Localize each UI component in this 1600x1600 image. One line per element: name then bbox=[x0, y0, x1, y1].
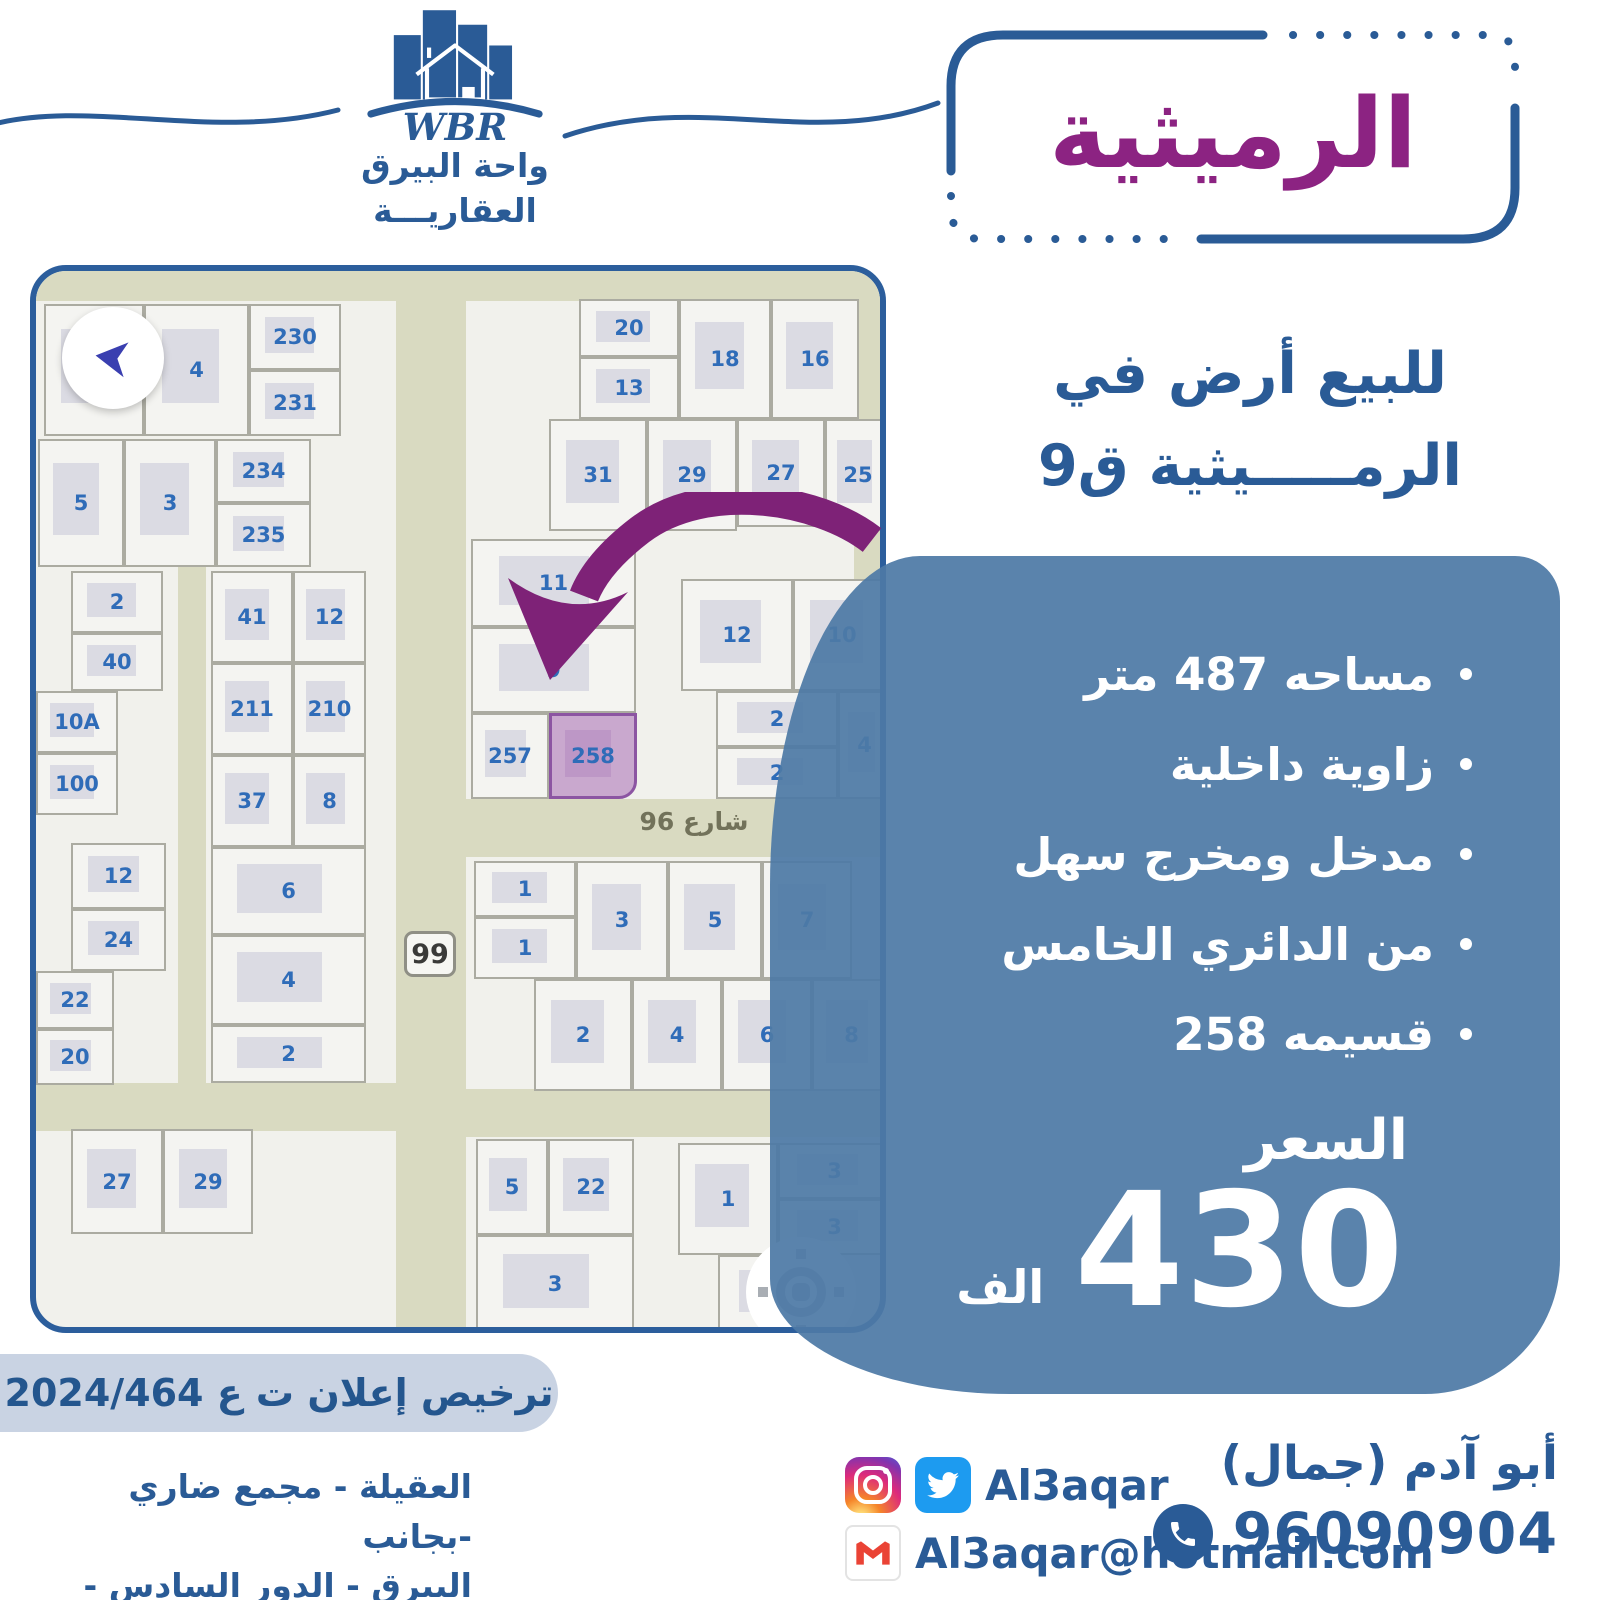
plot-number: 5 bbox=[670, 863, 760, 977]
map-road bbox=[36, 271, 886, 301]
subtitle: للبيع أرض في الرمـــــيثية ق9 bbox=[950, 328, 1550, 513]
map-plot: 12 bbox=[293, 571, 366, 663]
real-estate-flyer: WBR واحة البيرق العقاريـــة الرميثية للب… bbox=[0, 0, 1600, 1600]
map-plot: 210 bbox=[293, 663, 366, 755]
plot-number: 3 bbox=[478, 1237, 632, 1331]
map-plot: 230 bbox=[249, 304, 341, 370]
map-plot: 27 bbox=[71, 1129, 163, 1234]
plot-number: 1 bbox=[680, 1145, 776, 1253]
map-plot: 16 bbox=[771, 299, 859, 419]
map-plot: 13 bbox=[579, 357, 679, 419]
map-plot: 235 bbox=[216, 503, 311, 567]
map-plot: 2 bbox=[71, 571, 163, 633]
plot-number: 10A bbox=[38, 693, 116, 751]
map-plot: 24 bbox=[71, 909, 166, 971]
phone-icon bbox=[1153, 1504, 1213, 1564]
map-plot: 2 bbox=[534, 979, 632, 1091]
plot-number: 8 bbox=[295, 757, 364, 845]
map-plot: 37 bbox=[211, 755, 293, 847]
plot-number: 211 bbox=[213, 665, 291, 753]
plot-number: 25 bbox=[827, 421, 886, 529]
subtitle-line2: الرمـــــيثية ق9 bbox=[950, 420, 1550, 512]
phone-row: 96090904 bbox=[1153, 1501, 1558, 1567]
plot-number: 27 bbox=[739, 421, 823, 525]
plot-number: 5 bbox=[478, 1141, 546, 1233]
bullet-dot bbox=[1460, 758, 1472, 770]
plot-number: 5 bbox=[40, 441, 122, 565]
map-plot: 20 bbox=[579, 299, 679, 357]
map-plot: 257 bbox=[471, 713, 549, 799]
plot-number: 258 bbox=[552, 716, 634, 796]
feature-text: زاوية داخلية bbox=[1170, 738, 1434, 791]
plot-number: 3 bbox=[578, 863, 666, 977]
plot-number: 210 bbox=[295, 665, 364, 753]
map-plot: 29 bbox=[647, 419, 737, 531]
map-plot: 234 bbox=[216, 439, 311, 503]
map-plot: 5 bbox=[38, 439, 124, 567]
social-handle: Al3aqar bbox=[985, 1461, 1169, 1510]
feature-text: من الدائري الخامس bbox=[1001, 918, 1434, 971]
plot-number: 2 bbox=[73, 573, 161, 631]
route-99-badge: 99 bbox=[404, 931, 456, 977]
ad-license: ترخيص إعلان ت ع 2024/464 bbox=[0, 1354, 558, 1432]
map-plot: 25 bbox=[825, 419, 886, 531]
feature-item: من الدائري الخامس bbox=[1001, 914, 1472, 974]
plot-number: 37 bbox=[213, 757, 291, 845]
plot-number: 9 bbox=[473, 629, 634, 711]
map-plot: 4 bbox=[632, 979, 722, 1091]
plot-number: 257 bbox=[473, 715, 547, 797]
feature-item: مدخل ومخرج سهل bbox=[1013, 824, 1472, 884]
plot-number: 20 bbox=[581, 301, 677, 355]
map-plot: 3 bbox=[124, 439, 216, 567]
map-road bbox=[178, 566, 206, 1086]
map-plot: 22 bbox=[36, 971, 114, 1029]
bullet-dot bbox=[1460, 668, 1472, 680]
contact-block: أبو آدم (جمال) 96090904 bbox=[1153, 1436, 1558, 1567]
brand-name-line2: العقاريـــة bbox=[348, 189, 562, 234]
plot-number: 27 bbox=[73, 1131, 161, 1232]
map-plot: 1 bbox=[678, 1143, 778, 1255]
plot-number: 2 bbox=[536, 981, 630, 1089]
plot-number: 12 bbox=[683, 581, 791, 689]
wbr-skyline-house-icon: WBR bbox=[365, 4, 545, 144]
plot-number: 31 bbox=[551, 421, 645, 529]
plot-number: 22 bbox=[38, 973, 112, 1027]
map-plot: 1 bbox=[474, 861, 576, 917]
wbr-text: WBR bbox=[403, 105, 508, 144]
plot-number: 4 bbox=[634, 981, 720, 1089]
map-plot: 12 bbox=[71, 843, 166, 909]
map-plot: 6 bbox=[211, 847, 366, 935]
feature-item: مساحه 487 متر bbox=[1084, 644, 1472, 704]
map-plot: 10A bbox=[36, 691, 118, 753]
map-plot: 27 bbox=[737, 419, 825, 527]
bullet-dot bbox=[1460, 938, 1472, 950]
plot-number: 231 bbox=[251, 372, 339, 434]
agent-name: أبو آدم (جمال) bbox=[1153, 1436, 1558, 1491]
map-plot: 18 bbox=[679, 299, 771, 419]
map-plot: 9 bbox=[471, 627, 636, 713]
plot-number: 29 bbox=[165, 1131, 251, 1232]
plot-number: 24 bbox=[73, 911, 164, 969]
plot-number: 41 bbox=[213, 573, 291, 661]
map-plot: 211 bbox=[211, 663, 293, 755]
map-plot: 8 bbox=[293, 755, 366, 847]
map-plot: 12 bbox=[681, 579, 793, 691]
map-plot: 3 bbox=[476, 1235, 634, 1333]
plot-number: 100 bbox=[38, 755, 116, 813]
title-banner: الرميثية bbox=[933, 26, 1533, 248]
address-line1: العقيلة - مجمع ضاري -بجانب bbox=[40, 1462, 472, 1561]
bullet-dot bbox=[1460, 1028, 1472, 1040]
plot-number: 1 bbox=[476, 863, 574, 915]
map-plot: 41 bbox=[211, 571, 293, 663]
plot-number: 22 bbox=[550, 1141, 632, 1233]
map-plot: 2 bbox=[211, 1025, 366, 1083]
plot-number: 12 bbox=[295, 573, 364, 661]
map-canvas: 423023153234235201318163129272524010A100… bbox=[36, 271, 880, 1327]
instagram-icon bbox=[845, 1457, 901, 1513]
plot-number: 235 bbox=[218, 505, 309, 565]
address-line2: البيرق - الدور السادس - مكتب 6 bbox=[40, 1561, 472, 1600]
plot-number: 12 bbox=[73, 845, 164, 907]
map-plot: 11 bbox=[471, 539, 636, 627]
plot-number: 16 bbox=[773, 301, 857, 417]
bullet-dot bbox=[1460, 848, 1472, 860]
gmail-icon bbox=[845, 1525, 901, 1581]
map-plot: 5 bbox=[668, 861, 762, 979]
feature-text: مدخل ومخرج سهل bbox=[1013, 828, 1434, 881]
page-title: الرميثية bbox=[933, 26, 1533, 248]
price-amount: 430 bbox=[1074, 1172, 1404, 1330]
map-plot: 29 bbox=[163, 1129, 253, 1234]
map-plot: 231 bbox=[249, 370, 341, 436]
office-address: العقيلة - مجمع ضاري -بجانب البيرق - الدو… bbox=[40, 1462, 472, 1600]
feature-text: مساحه 487 متر bbox=[1084, 648, 1434, 701]
map-plot: 100 bbox=[36, 753, 118, 815]
company-logo: WBR واحة البيرق العقاريـــة bbox=[348, 4, 562, 233]
map-plot-highlighted: 258 bbox=[549, 713, 637, 799]
price-unit: الف bbox=[956, 1260, 1044, 1330]
plot-number: 3 bbox=[126, 441, 214, 565]
navigation-arrow-icon bbox=[88, 333, 138, 383]
map-plot: 5 bbox=[476, 1139, 548, 1235]
map-road bbox=[36, 1083, 396, 1131]
location-map: 423023153234235201318163129272524010A100… bbox=[30, 265, 886, 1333]
plot-number: 230 bbox=[251, 306, 339, 368]
plot-number: 4 bbox=[213, 937, 364, 1023]
feature-item: قسيمه 258 bbox=[1173, 1004, 1472, 1064]
plot-number: 20 bbox=[38, 1031, 112, 1083]
map-plot: 1 bbox=[474, 917, 576, 979]
plot-number: 13 bbox=[581, 359, 677, 417]
map-plot: 4 bbox=[211, 935, 366, 1025]
map-navigation-button bbox=[62, 307, 164, 409]
plot-number: 11 bbox=[473, 541, 634, 625]
plot-number: 6 bbox=[213, 849, 364, 933]
plot-number: 1 bbox=[476, 919, 574, 977]
map-plot: 40 bbox=[71, 633, 163, 691]
brand-name-line1: واحة البيرق bbox=[348, 144, 562, 189]
plot-number: 40 bbox=[73, 635, 161, 689]
plot-number: 2 bbox=[213, 1027, 364, 1081]
map-plot: 22 bbox=[548, 1139, 634, 1235]
map-plot: 31 bbox=[549, 419, 647, 531]
map-road bbox=[396, 271, 466, 1333]
details-panel: مساحه 487 مترزاوية داخليةمدخل ومخرج سهلم… bbox=[770, 556, 1560, 1394]
map-plot: 20 bbox=[36, 1029, 114, 1085]
phone-number: 96090904 bbox=[1233, 1501, 1558, 1567]
feature-item: زاوية داخلية bbox=[1170, 734, 1472, 794]
plot-number: 234 bbox=[218, 441, 309, 501]
plot-number: 18 bbox=[681, 301, 769, 417]
plot-number: 29 bbox=[649, 421, 735, 529]
price-row: الف 430 bbox=[956, 1172, 1404, 1330]
features-list: مساحه 487 مترزاوية داخليةمدخل ومخرج سهلم… bbox=[1001, 644, 1472, 1064]
subtitle-line1: للبيع أرض في bbox=[950, 328, 1550, 420]
feature-text: قسيمه 258 bbox=[1173, 1008, 1434, 1061]
map-plot: 3 bbox=[576, 861, 668, 979]
twitter-icon bbox=[915, 1457, 971, 1513]
